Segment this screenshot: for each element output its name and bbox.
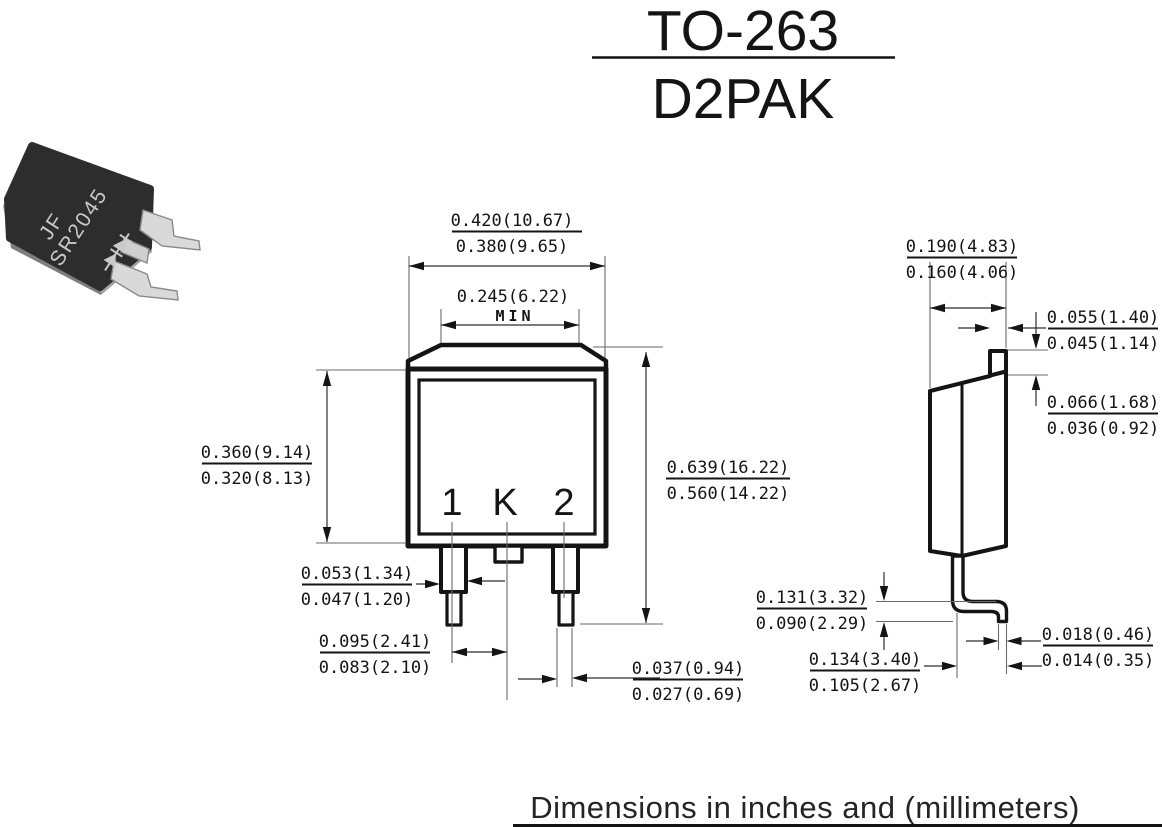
footer: Dimensions in inches and (millimeters): [513, 790, 1162, 826]
dim-tab-width-min: 0.245(6.22) MIN: [441, 287, 579, 343]
arrowhead-up: [642, 352, 650, 367]
arrowhead-left: [930, 304, 945, 312]
arrowhead-left: [467, 577, 482, 585]
dim-tab-thickness: 0.055(1.40) 0.045(1.14): [958, 308, 1159, 354]
arrowhead-down: [642, 608, 650, 623]
side-view: 0.190(4.83) 0.160(4.06) 0.055(1.40) 0.04…: [756, 237, 1160, 696]
units-caption: Dimensions in inches and (millimeters): [530, 790, 1080, 825]
arrowhead-right: [975, 324, 990, 332]
pin-2-label: 2: [553, 482, 574, 524]
arrowhead-right: [492, 648, 507, 656]
dim-max: 0.131(3.32): [756, 588, 869, 608]
dim-max: 0.018(0.46): [1042, 625, 1155, 645]
dim-min: 0.047(1.20): [301, 590, 414, 610]
front-lead-1-shoulder: [441, 546, 466, 592]
package-photo: JF SR2045: [3, 146, 200, 300]
arrowhead-left: [1008, 324, 1023, 332]
pin-k-label: K: [492, 482, 517, 524]
dim-max: 0.134(3.40): [809, 650, 922, 670]
arrowhead-right: [425, 580, 440, 588]
title-block: TO-263 D2PAK: [592, 0, 895, 131]
dim-qualifier: MIN: [495, 307, 534, 325]
arrowhead-left: [441, 321, 456, 329]
dim-max: 0.420(10.67): [451, 211, 574, 231]
dim-min: 0.014(0.35): [1042, 651, 1155, 671]
dim-lead-pitch: 0.095(2.41) 0.083(2.10): [319, 632, 507, 678]
dim-min: 0.560(14.22): [667, 484, 790, 504]
dim-min: 0.027(0.69): [632, 685, 745, 705]
dim-overall-width: 0.420(10.67) 0.380(9.65): [409, 211, 605, 358]
arrowhead-up: [323, 371, 331, 386]
arrowhead-down: [1032, 334, 1040, 349]
arrowhead-up: [880, 622, 888, 637]
dim-min: 0.090(2.29): [756, 614, 869, 634]
dim-max: 0.639(16.22): [667, 458, 790, 478]
arrowhead-right: [991, 304, 1006, 312]
dim-value: 0.245(6.22): [457, 287, 570, 307]
datasheet-page: TO-263 D2PAK JF SR2045: [0, 0, 1162, 827]
arrowhead-left: [572, 674, 587, 682]
arrowhead-left: [409, 262, 424, 270]
dim-max: 0.190(4.83): [906, 237, 1019, 257]
dim-min: 0.105(2.67): [809, 676, 922, 696]
package-name-secondary: D2PAK: [652, 67, 835, 131]
dim-min: 0.083(2.10): [319, 658, 432, 678]
dim-lead-thickness: 0.018(0.46) 0.014(0.35): [966, 624, 1154, 674]
arrowhead-right: [564, 321, 579, 329]
dim-max: 0.095(2.41): [319, 632, 432, 652]
arrowhead-down: [880, 586, 888, 601]
dim-min: 0.160(4.06): [906, 263, 1019, 283]
photo-lead-bottom: [111, 261, 178, 300]
package-name-primary: TO-263: [647, 0, 839, 63]
arrowhead-right: [542, 675, 557, 683]
dim-min: 0.320(8.13): [201, 469, 314, 489]
dim-min: 0.380(9.65): [456, 237, 569, 257]
dim-overall-height: 0.639(16.22) 0.560(14.22): [580, 347, 790, 624]
dim-max: 0.037(0.94): [632, 659, 745, 679]
dim-lead-width: 0.053(1.34) 0.047(1.20): [301, 564, 505, 610]
arrowhead-right: [942, 662, 957, 670]
package-outline-drawing: TO-263 D2PAK JF SR2045: [0, 0, 1162, 827]
side-body-outline: [930, 351, 1006, 556]
dim-min: 0.036(0.92): [1047, 419, 1160, 439]
arrowhead-up: [1032, 375, 1040, 390]
dim-max: 0.066(1.68): [1047, 393, 1160, 413]
dim-lead-tip-width: 0.037(0.94) 0.027(0.69): [518, 628, 744, 705]
arrowhead-right: [590, 262, 605, 270]
dim-tab-step-height: 0.066(1.68) 0.036(0.92): [1008, 375, 1159, 439]
arrowhead-down: [323, 527, 331, 542]
arrowhead-right: [984, 637, 999, 645]
front-lead-2-tip: [559, 592, 573, 625]
front-view: 1 K 2 0.420(10.67) 0.380(9.65) 0.245(6.2…: [201, 211, 790, 705]
dim-max: 0.360(9.14): [201, 443, 314, 463]
arrowhead-left: [1007, 637, 1022, 645]
front-lead-1-tip: [447, 592, 461, 625]
arrowhead-left: [452, 648, 467, 656]
pin-1-label: 1: [441, 482, 462, 524]
dim-max: 0.055(1.40): [1047, 308, 1160, 328]
front-center-tab: [495, 546, 522, 562]
front-lead-2-shoulder: [553, 546, 578, 592]
dim-body-height: 0.360(9.14) 0.320(8.13): [201, 370, 406, 543]
side-lead-profile: [953, 556, 1007, 622]
dim-max: 0.053(1.34): [301, 564, 414, 584]
arrowhead-left: [1007, 662, 1022, 670]
dim-min: 0.045(1.14): [1047, 334, 1160, 354]
